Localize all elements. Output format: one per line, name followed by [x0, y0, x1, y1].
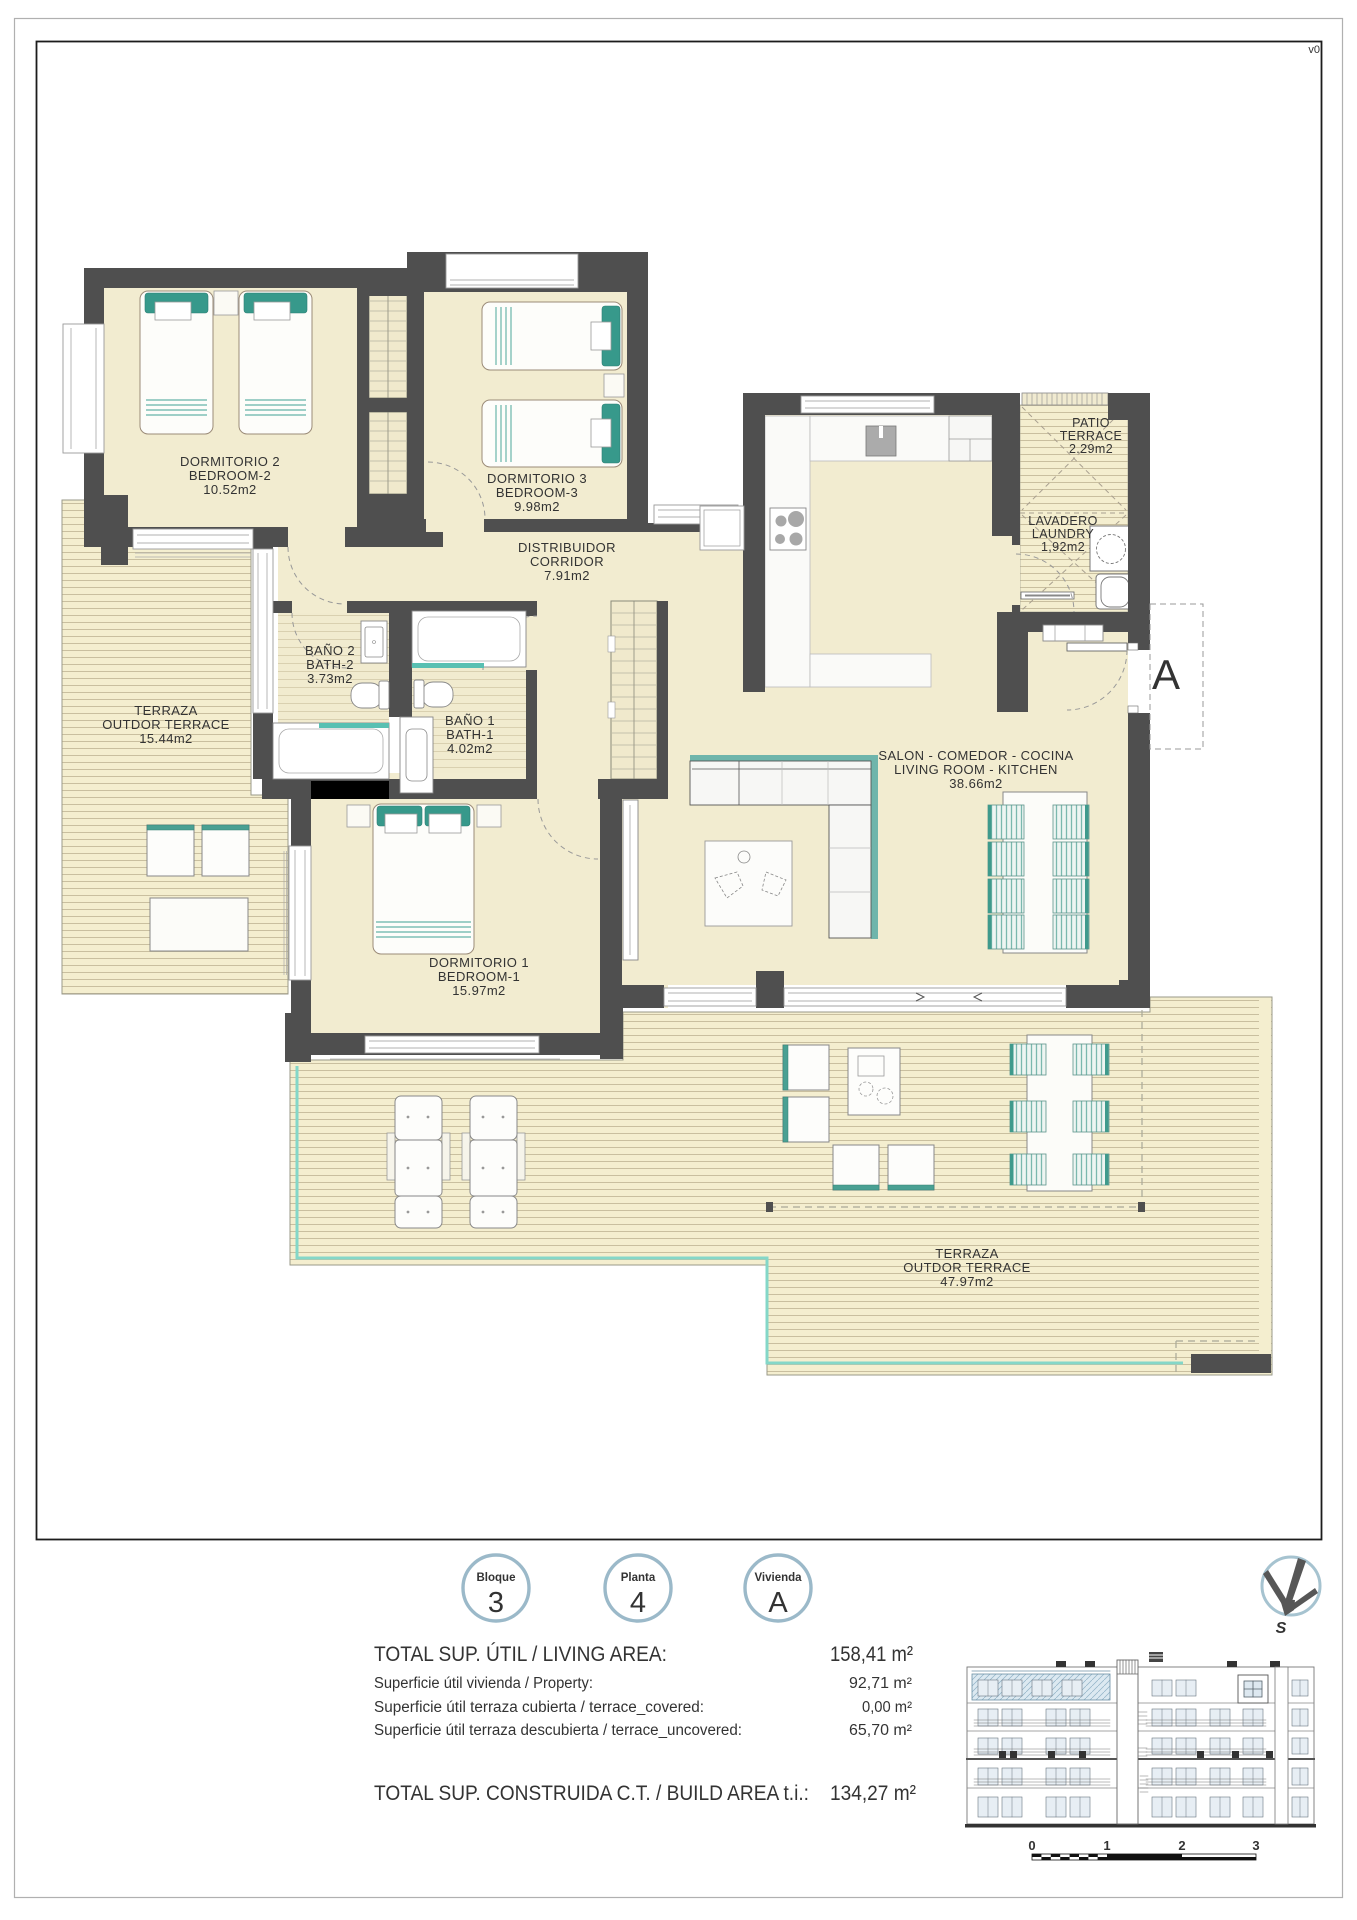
svg-text:2.29m2: 2.29m2 — [1069, 442, 1113, 456]
svg-text:Superficie útil terraza cubier: Superficie útil terraza cubierta / terra… — [374, 1699, 704, 1716]
svg-text:CORRIDOR: CORRIDOR — [530, 554, 604, 569]
svg-text:DORMITORIO 1: DORMITORIO 1 — [429, 955, 529, 970]
svg-text:v0: v0 — [1308, 44, 1320, 56]
svg-text:Superficie útil terraza descub: Superficie útil terraza descubierta / te… — [374, 1722, 742, 1739]
svg-text:158,41 m²: 158,41 m² — [830, 1643, 913, 1666]
svg-text:S: S — [1276, 1620, 1287, 1637]
svg-text:OUTDOR TERRACE: OUTDOR TERRACE — [903, 1260, 1030, 1275]
svg-text:134,27 m²: 134,27 m² — [830, 1782, 916, 1805]
svg-text:BAÑO 2: BAÑO 2 — [305, 643, 355, 658]
svg-text:A: A — [768, 1587, 788, 1619]
svg-text:0: 0 — [1028, 1838, 1035, 1853]
svg-text:1: 1 — [1103, 1838, 1110, 1853]
svg-text:BEDROOM-2: BEDROOM-2 — [189, 468, 271, 483]
svg-text:SALON - COMEDOR - COCINA: SALON - COMEDOR - COCINA — [878, 748, 1073, 763]
svg-text:DORMITORIO 2: DORMITORIO 2 — [180, 454, 280, 469]
svg-text:TOTAL SUP. CONSTRUIDA C.T. / B: TOTAL SUP. CONSTRUIDA C.T. / BUILD AREA … — [374, 1782, 809, 1805]
svg-text:Planta: Planta — [621, 1572, 656, 1584]
svg-text:BEDROOM-3: BEDROOM-3 — [496, 485, 578, 500]
svg-text:4: 4 — [630, 1587, 646, 1619]
svg-text:10.52m2: 10.52m2 — [203, 482, 256, 497]
svg-text:9.98m2: 9.98m2 — [514, 499, 560, 514]
svg-text:OUTDOR TERRACE: OUTDOR TERRACE — [102, 717, 229, 732]
svg-text:3.73m2: 3.73m2 — [307, 671, 353, 686]
svg-text:A: A — [1152, 651, 1180, 698]
svg-text:1,92m2: 1,92m2 — [1041, 540, 1085, 554]
svg-text:TERRAZA: TERRAZA — [935, 1246, 998, 1261]
svg-text:38.66m2: 38.66m2 — [949, 776, 1002, 791]
svg-text:DISTRIBUIDOR: DISTRIBUIDOR — [518, 540, 616, 555]
svg-text:PATIO: PATIO — [1072, 416, 1110, 430]
svg-text:DORMITORIO 3: DORMITORIO 3 — [487, 471, 587, 486]
svg-text:BATH-2: BATH-2 — [306, 657, 354, 672]
svg-text:15.97m2: 15.97m2 — [452, 983, 505, 998]
svg-text:LAVADERO: LAVADERO — [1028, 514, 1097, 528]
svg-text:Vivienda: Vivienda — [754, 1572, 802, 1584]
svg-text:Bloque: Bloque — [477, 1572, 516, 1584]
svg-text:BAÑO 1: BAÑO 1 — [445, 713, 495, 728]
svg-text:0,00 m²: 0,00 m² — [862, 1699, 912, 1716]
svg-text:BATH-1: BATH-1 — [446, 727, 494, 742]
svg-text:LAUNDRY: LAUNDRY — [1032, 527, 1095, 541]
svg-text:65,70 m²: 65,70 m² — [849, 1722, 912, 1739]
svg-text:TOTAL SUP. ÚTIL / LIVING AREA:: TOTAL SUP. ÚTIL / LIVING AREA: — [374, 1643, 667, 1666]
svg-text:BEDROOM-1: BEDROOM-1 — [438, 969, 520, 984]
svg-text:TERRACE: TERRACE — [1060, 429, 1123, 443]
svg-text:7.91m2: 7.91m2 — [544, 568, 590, 583]
svg-text:LIVING ROOM - KITCHEN: LIVING ROOM - KITCHEN — [894, 762, 1058, 777]
svg-text:3: 3 — [1252, 1838, 1259, 1853]
svg-text:2: 2 — [1178, 1838, 1185, 1853]
svg-text:47.97m2: 47.97m2 — [940, 1274, 993, 1289]
svg-text:15.44m2: 15.44m2 — [139, 731, 192, 746]
svg-text:4.02m2: 4.02m2 — [447, 741, 493, 756]
svg-text:92,71 m²: 92,71 m² — [849, 1675, 912, 1692]
svg-text:TERRAZA: TERRAZA — [134, 703, 197, 718]
svg-text:3: 3 — [488, 1587, 504, 1619]
svg-text:Superficie útil vivienda / Pro: Superficie útil vivienda / Property: — [374, 1675, 593, 1692]
